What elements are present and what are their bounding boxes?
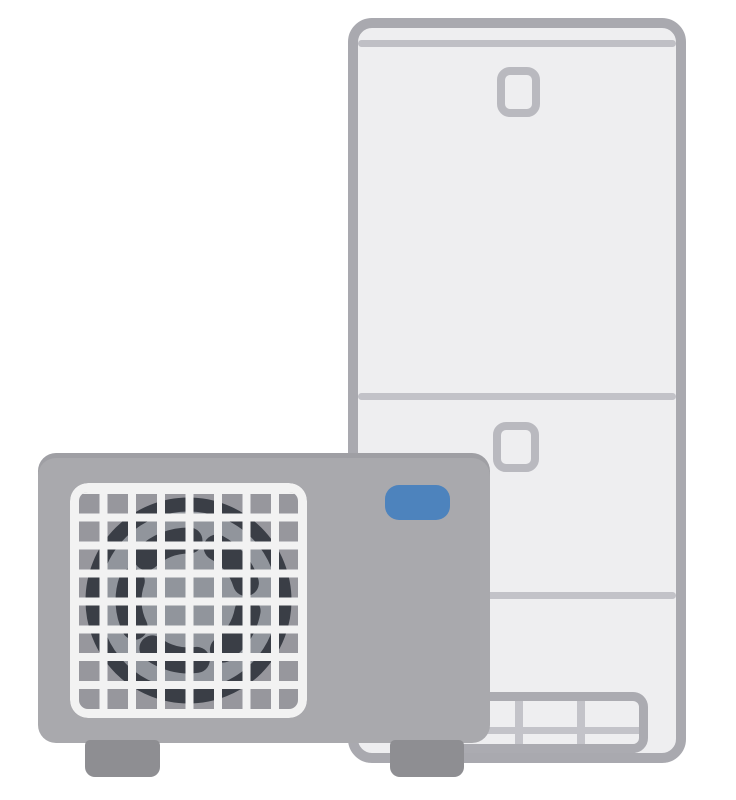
pump-foot-left [85, 740, 160, 777]
fan-grille [70, 483, 307, 718]
tank-upper-vent-square [497, 67, 540, 117]
tank-middle-seam-line [358, 393, 676, 400]
vent-divider [577, 701, 585, 744]
pump-indicator-badge [385, 485, 450, 520]
tank-top-seam-line [358, 40, 676, 47]
heat-pump-outdoor-unit [38, 453, 490, 743]
grille-grid-bars [70, 483, 307, 718]
vent-divider [515, 701, 523, 744]
tank-middle-vent-square [493, 422, 539, 472]
ecocute-illustration [0, 0, 736, 800]
pump-foot-right [390, 740, 464, 777]
